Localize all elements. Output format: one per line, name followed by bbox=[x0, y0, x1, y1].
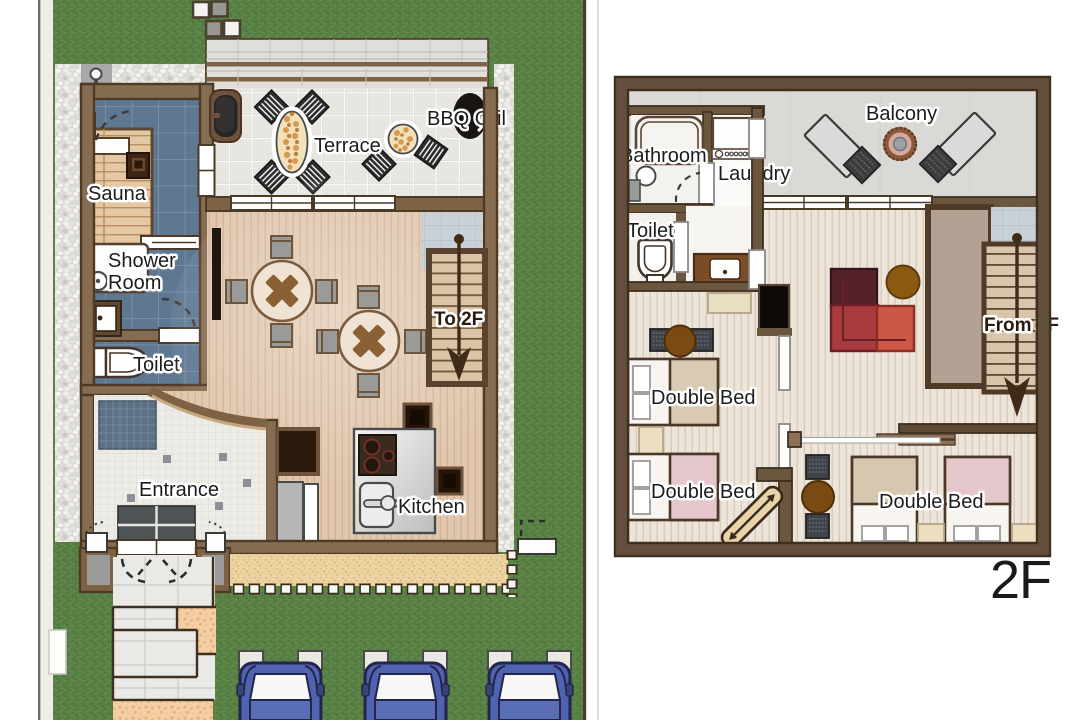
svg-text:Shower: Shower bbox=[108, 250, 176, 272]
svg-text:Balcony: Balcony bbox=[866, 103, 937, 125]
svg-text:Double Bed: Double Bed bbox=[651, 481, 756, 503]
svg-text:Toilet: Toilet bbox=[627, 220, 674, 242]
svg-text:Double Bed: Double Bed bbox=[879, 491, 984, 513]
svg-text:Kitchen: Kitchen bbox=[398, 496, 465, 518]
svg-text:Sauna: Sauna bbox=[88, 183, 147, 205]
svg-text:Room: Room bbox=[108, 272, 161, 294]
svg-text:Double Bed: Double Bed bbox=[651, 387, 756, 409]
svg-text:Entrance: Entrance bbox=[139, 479, 219, 501]
svg-text:Terrace: Terrace bbox=[314, 135, 381, 157]
svg-text:Bathroom: Bathroom bbox=[620, 145, 707, 167]
svg-text:2F: 2F bbox=[990, 550, 1051, 610]
svg-text:To 2F: To 2F bbox=[434, 309, 483, 330]
